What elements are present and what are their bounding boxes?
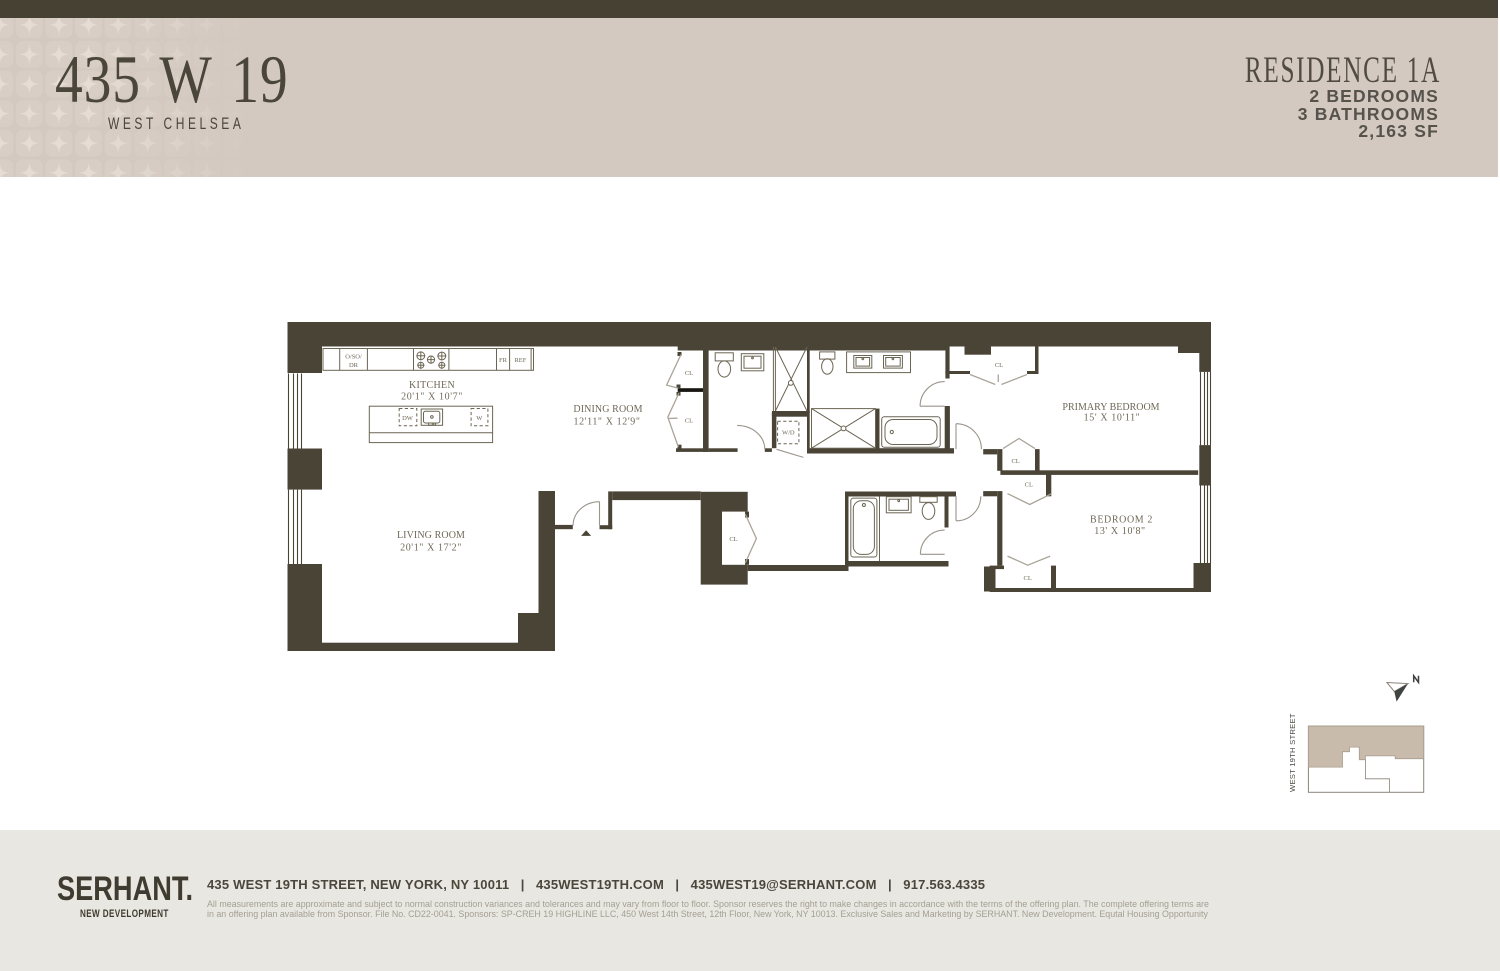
svg-text:DW: DW [402,415,414,422]
svg-text:KITCHEN: KITCHEN [409,380,455,391]
svg-text:W: W [476,415,483,422]
svg-text:W/D: W/D [782,430,795,437]
svg-text:LIVING ROOM: LIVING ROOM [397,530,465,541]
svg-text:BEDROOM 2: BEDROOM 2 [1090,515,1153,526]
svg-text:CL: CL [1025,482,1033,489]
svg-text:20'1" X 17'2": 20'1" X 17'2" [400,543,462,554]
svg-text:CL: CL [685,370,693,377]
svg-text:20'1" X 10'7": 20'1" X 10'7" [401,392,463,403]
svg-text:PRIMARY BEDROOM: PRIMARY BEDROOM [1062,402,1159,413]
svg-text:12'11" X 12'9": 12'11" X 12'9" [573,417,640,428]
svg-text:CL: CL [1011,458,1019,465]
svg-text:CL: CL [995,362,1003,369]
svg-text:13' X 10'8": 13' X 10'8" [1094,526,1146,537]
svg-text:15' X 10'11": 15' X 10'11" [1084,413,1141,424]
svg-text:FR: FR [499,357,508,364]
svg-text:WEST 19TH STREET: WEST 19TH STREET [1288,713,1297,792]
svg-text:CL: CL [1024,575,1032,582]
svg-text:CL: CL [729,536,737,543]
svg-text:DINING ROOM: DINING ROOM [573,404,642,415]
svg-text:O/SO/: O/SO/ [345,354,362,361]
svg-text:CL: CL [685,418,693,425]
svg-text:DR: DR [349,362,359,369]
svg-text:REF: REF [514,357,526,364]
